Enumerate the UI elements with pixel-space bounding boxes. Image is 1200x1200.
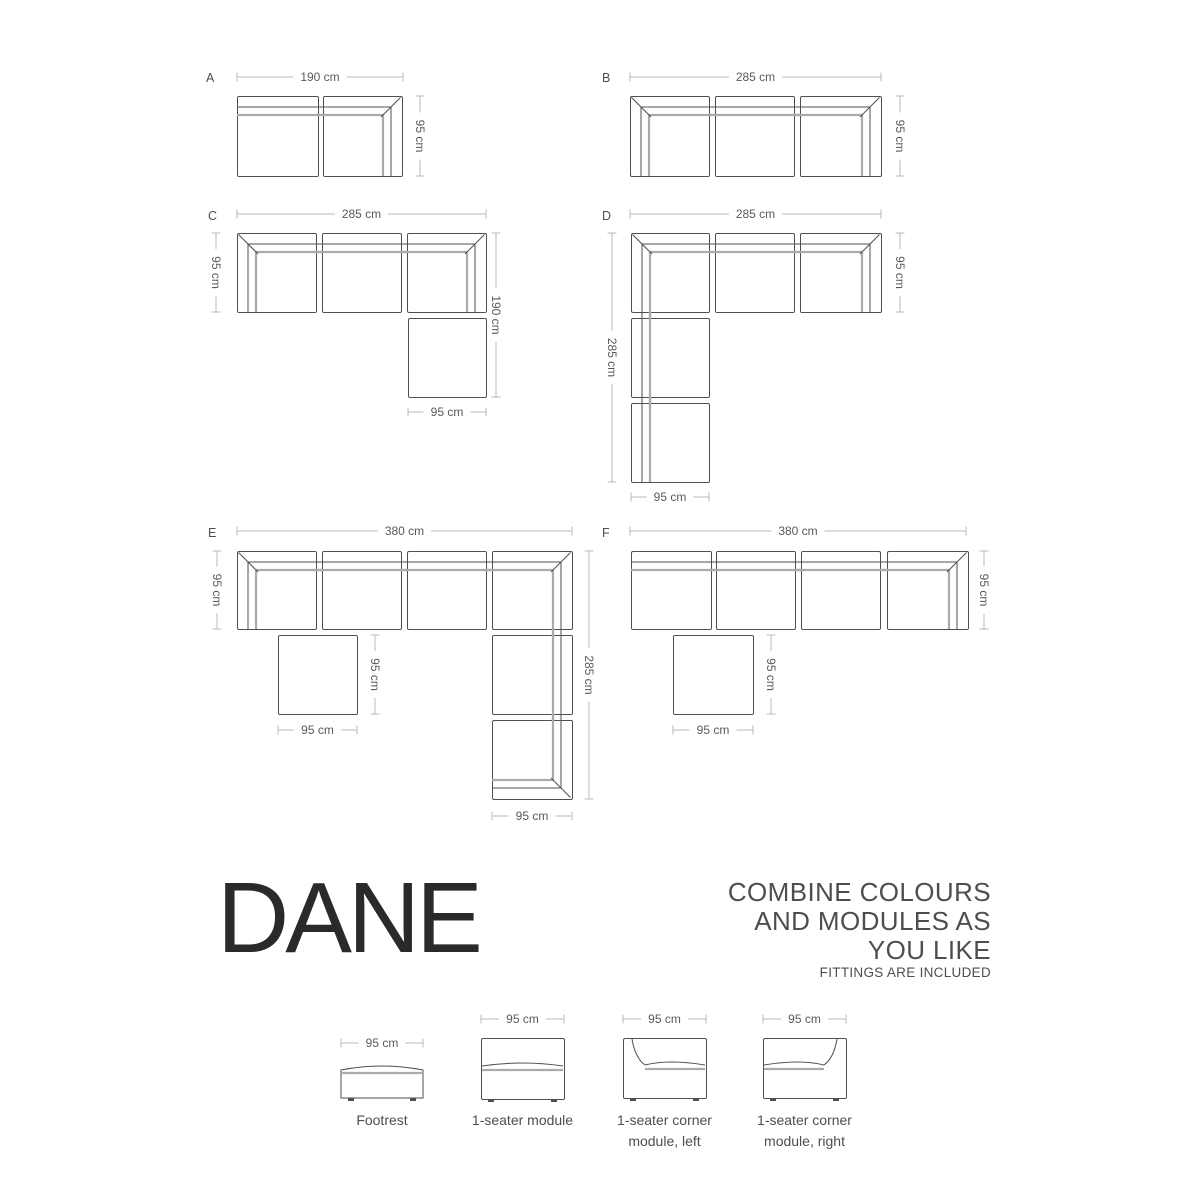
module-corner-tr [794, 234, 882, 313]
foot [551, 1099, 557, 1102]
dimension: 95 cm [623, 1012, 706, 1026]
dimension: 95 cm [341, 1036, 423, 1050]
module-seat-top [316, 552, 407, 630]
module-footrest [279, 636, 358, 715]
dim-label: 95 cm [977, 574, 991, 607]
dimension: 95 cm [413, 96, 427, 176]
foot [630, 1098, 636, 1101]
dim-label: 95 cm [516, 809, 549, 823]
dim-label: 95 cm [654, 490, 687, 504]
dim-label: 95 cm [368, 658, 382, 691]
module-corner-br [492, 714, 573, 800]
module-outline [632, 552, 712, 630]
diagram-f: F380 cm95 cm95 cm95 cm [602, 524, 991, 737]
legend-corner-right-front: 95 cm [763, 1012, 847, 1101]
dim-label: 285 cm [736, 207, 775, 221]
dim-label: 285 cm [342, 207, 381, 221]
seat-curve [482, 1063, 563, 1066]
module-seat-top [709, 234, 800, 313]
foot [410, 1098, 416, 1101]
dimension: 95 cm [764, 635, 778, 714]
dimension: 285 cm [630, 70, 881, 84]
dim-label: 95 cm [697, 723, 730, 737]
module-outline [802, 552, 881, 630]
diagram-letter: C [208, 209, 217, 223]
module-outline [323, 552, 402, 630]
dim-label: 95 cm [648, 1012, 681, 1026]
module-footrest [674, 636, 754, 715]
dimension: 190 cm [489, 233, 503, 397]
dimension: 190 cm [237, 70, 403, 84]
dimension: 95 cm [893, 233, 907, 312]
tagline: COMBINE COLOURS AND MODULES AS YOU LIKE … [728, 878, 991, 980]
dimension: 95 cm [408, 405, 486, 419]
dim-label: 95 cm [893, 256, 907, 289]
dim-label: 95 cm [506, 1012, 539, 1026]
dim-label: 380 cm [778, 524, 817, 538]
legend-label-footrest: Footrest [317, 1110, 447, 1131]
module-seat-top [237, 97, 324, 177]
diagram-d: D285 cm285 cm95 cm95 cm [602, 207, 907, 504]
legend-seat-front: 95 cm [481, 1012, 565, 1102]
module-seat-right [493, 629, 573, 720]
dim-label: 95 cm [431, 405, 464, 419]
dim-label: 95 cm [209, 256, 223, 289]
dimension: 95 cm [481, 1012, 564, 1026]
diagram-e: E380 cm95 cm95 cm95 cm285 cm95 cm [208, 524, 596, 823]
module-corner-tr [486, 552, 573, 636]
module-outline [279, 636, 358, 715]
module-footrest [409, 319, 487, 398]
diagram-b: B285 cm95 cm [602, 70, 907, 177]
dimension: 285 cm [237, 207, 486, 221]
diagram-letter: F [602, 526, 610, 540]
module-corner-tl [632, 234, 716, 319]
module-outline [632, 319, 710, 398]
dim-label: 285 cm [582, 655, 596, 694]
diagram-letter: B [602, 71, 610, 85]
dimension: 95 cm [209, 233, 223, 312]
dimension: 95 cm [368, 635, 382, 714]
foot [488, 1099, 494, 1102]
tagline-line: COMBINE COLOURS [728, 878, 991, 907]
diagram-letter: D [602, 209, 611, 223]
module-outline [674, 636, 754, 715]
diagram-letter: E [208, 526, 216, 540]
module-seat-left [632, 312, 710, 403]
module-corner-tr [794, 97, 882, 177]
module-corner-tr [881, 552, 969, 630]
dimension: 95 cm [977, 551, 991, 629]
poster: A190 cm95 cmB285 cm95 cmC285 cm95 cm190 … [0, 0, 1200, 1200]
module-corner-tl [238, 552, 323, 630]
legend-label-corner-right: 1-seater corner module, right [740, 1110, 870, 1152]
dimension: 95 cm [278, 723, 357, 737]
module-seat-top [316, 234, 407, 313]
dim-label: 95 cm [210, 574, 224, 607]
module-seat-left [632, 397, 710, 483]
dim-label: 95 cm [366, 1036, 399, 1050]
module-outline [238, 97, 319, 177]
module-outline [408, 552, 487, 630]
module-outline [323, 234, 402, 313]
module-diagrams-svg: A190 cm95 cmB285 cm95 cmC285 cm95 cm190 … [0, 0, 1200, 1200]
module-corner-tl [238, 234, 323, 313]
module-outline [717, 552, 796, 630]
footrest-body [341, 1066, 423, 1098]
tagline-line: YOU LIKE [728, 936, 991, 965]
dim-label: 95 cm [764, 658, 778, 691]
legend-label-corner-left: 1-seater corner module, left [600, 1110, 730, 1152]
seat-curve [645, 1062, 705, 1065]
brand-title: DANE [217, 868, 479, 968]
dimension: 380 cm [630, 524, 966, 538]
foot [348, 1098, 354, 1101]
dimension: 285 cm [582, 551, 596, 799]
dimension: 380 cm [237, 524, 572, 538]
foot [693, 1098, 699, 1101]
tagline-line: AND MODULES AS [728, 907, 991, 936]
dimension: 95 cm [631, 490, 709, 504]
dim-label: 285 cm [605, 338, 619, 377]
backrest-curve [632, 1039, 645, 1065]
dimension: 95 cm [763, 1012, 846, 1026]
diagram-a: A190 cm95 cm [206, 70, 427, 177]
module-seat-top [401, 552, 492, 630]
dim-label: 190 cm [300, 70, 339, 84]
foot [833, 1098, 839, 1101]
module-corner-tr [401, 234, 487, 313]
dimension: 95 cm [210, 551, 224, 629]
module-outline [716, 234, 795, 313]
dimension: 95 cm [673, 723, 753, 737]
module-corner-tr [317, 97, 403, 177]
dim-label: 95 cm [301, 723, 334, 737]
dimension: 285 cm [605, 233, 619, 482]
module-outline [716, 97, 795, 177]
module-seat-top [795, 552, 886, 630]
dim-label: 95 cm [788, 1012, 821, 1026]
diagram-letter: A [206, 71, 215, 85]
legend-corner-left-front: 95 cm [623, 1012, 707, 1101]
dim-label: 95 cm [893, 120, 907, 153]
module-seat-top [710, 552, 801, 630]
module-outline [801, 97, 882, 177]
dim-label: 190 cm [489, 295, 503, 334]
module-corner-tl [631, 97, 716, 177]
fittings-note: FITTINGS ARE INCLUDED [728, 966, 991, 980]
dim-label: 285 cm [736, 70, 775, 84]
backrest-curve [824, 1039, 837, 1065]
legend-footrest-front: 95 cm [341, 1036, 423, 1101]
module-seat-top [631, 552, 717, 630]
seat-curve [764, 1062, 824, 1065]
module-outline [632, 404, 710, 483]
module-outline [409, 319, 487, 398]
dim-label: 95 cm [413, 120, 427, 153]
foot [770, 1098, 776, 1101]
dimension: 95 cm [893, 96, 907, 176]
module-seat-top [709, 97, 800, 177]
diagram-c: C285 cm95 cm190 cm95 cm [208, 207, 503, 419]
legend-label-seater: 1-seater module [458, 1110, 588, 1131]
dim-label: 380 cm [385, 524, 424, 538]
dimension: 285 cm [630, 207, 881, 221]
dimension: 95 cm [492, 809, 572, 823]
